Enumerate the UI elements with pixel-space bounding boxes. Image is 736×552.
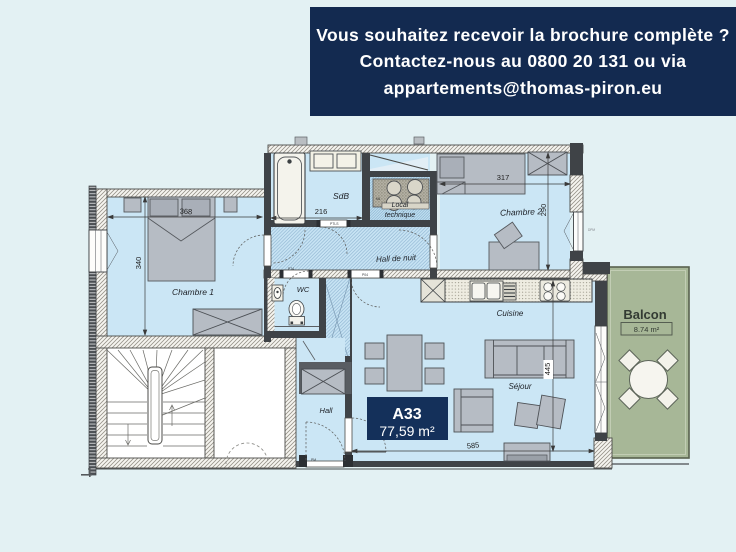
svg-text:317: 317 xyxy=(497,173,510,182)
svg-text:DPM: DPM xyxy=(588,228,595,232)
svg-text:P04: P04 xyxy=(362,273,368,277)
svg-text:SdB: SdB xyxy=(333,191,349,201)
svg-text:77,59 m²: 77,59 m² xyxy=(379,423,435,439)
svg-text:Chambre 1: Chambre 1 xyxy=(172,287,214,297)
svg-text:WC: WC xyxy=(297,285,310,294)
svg-text:technique: technique xyxy=(385,212,415,219)
svg-text:Séjour: Séjour xyxy=(508,382,531,391)
svg-text:PM: PM xyxy=(311,458,316,462)
svg-text:585: 585 xyxy=(466,440,479,450)
svg-text:445: 445 xyxy=(543,363,552,376)
svg-text:Cuisine: Cuisine xyxy=(497,309,524,318)
svg-text:PTLS: PTLS xyxy=(330,222,339,226)
svg-text:M1: M1 xyxy=(376,197,381,201)
svg-text:Chambre 2: Chambre 2 xyxy=(500,206,543,217)
svg-text:216: 216 xyxy=(315,207,328,216)
svg-text:Balcon: Balcon xyxy=(623,307,666,322)
svg-text:340: 340 xyxy=(134,257,143,270)
svg-text:8.74 m²: 8.74 m² xyxy=(634,325,660,334)
svg-text:Local: Local xyxy=(392,202,409,209)
svg-text:Hall: Hall xyxy=(320,406,333,415)
svg-text:P74: P74 xyxy=(288,267,294,271)
svg-text:A33: A33 xyxy=(392,406,421,423)
svg-text:368: 368 xyxy=(179,207,192,217)
